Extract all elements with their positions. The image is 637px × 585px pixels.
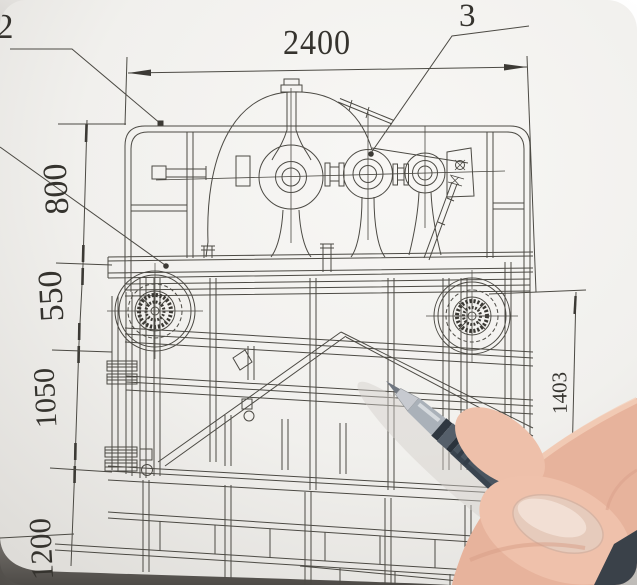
hand-and-pen	[0, 0, 637, 585]
photo-of-engineering-drawing: 2400 2 3 800 550 1050 1200 1403	[0, 0, 637, 585]
